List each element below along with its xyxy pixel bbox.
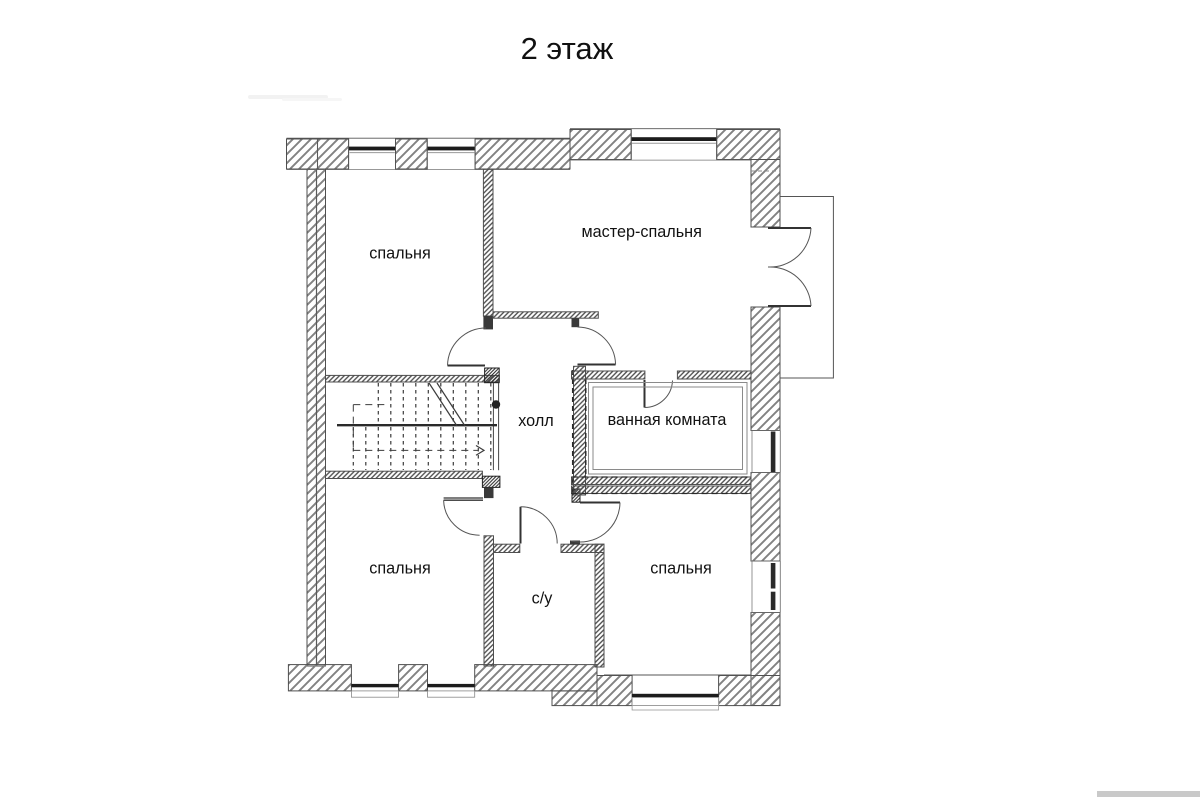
svg-text:спальня: спальня [369,245,430,263]
svg-text:с/у: с/у [532,590,554,608]
svg-text:спальня: спальня [650,560,711,578]
svg-text:2 этаж: 2 этаж [521,31,614,66]
svg-text:ванная комната: ванная комната [608,411,727,429]
svg-text:мастер-спальня: мастер-спальня [582,223,702,241]
svg-text:спальня: спальня [369,560,430,578]
svg-text:холл: холл [518,412,553,430]
